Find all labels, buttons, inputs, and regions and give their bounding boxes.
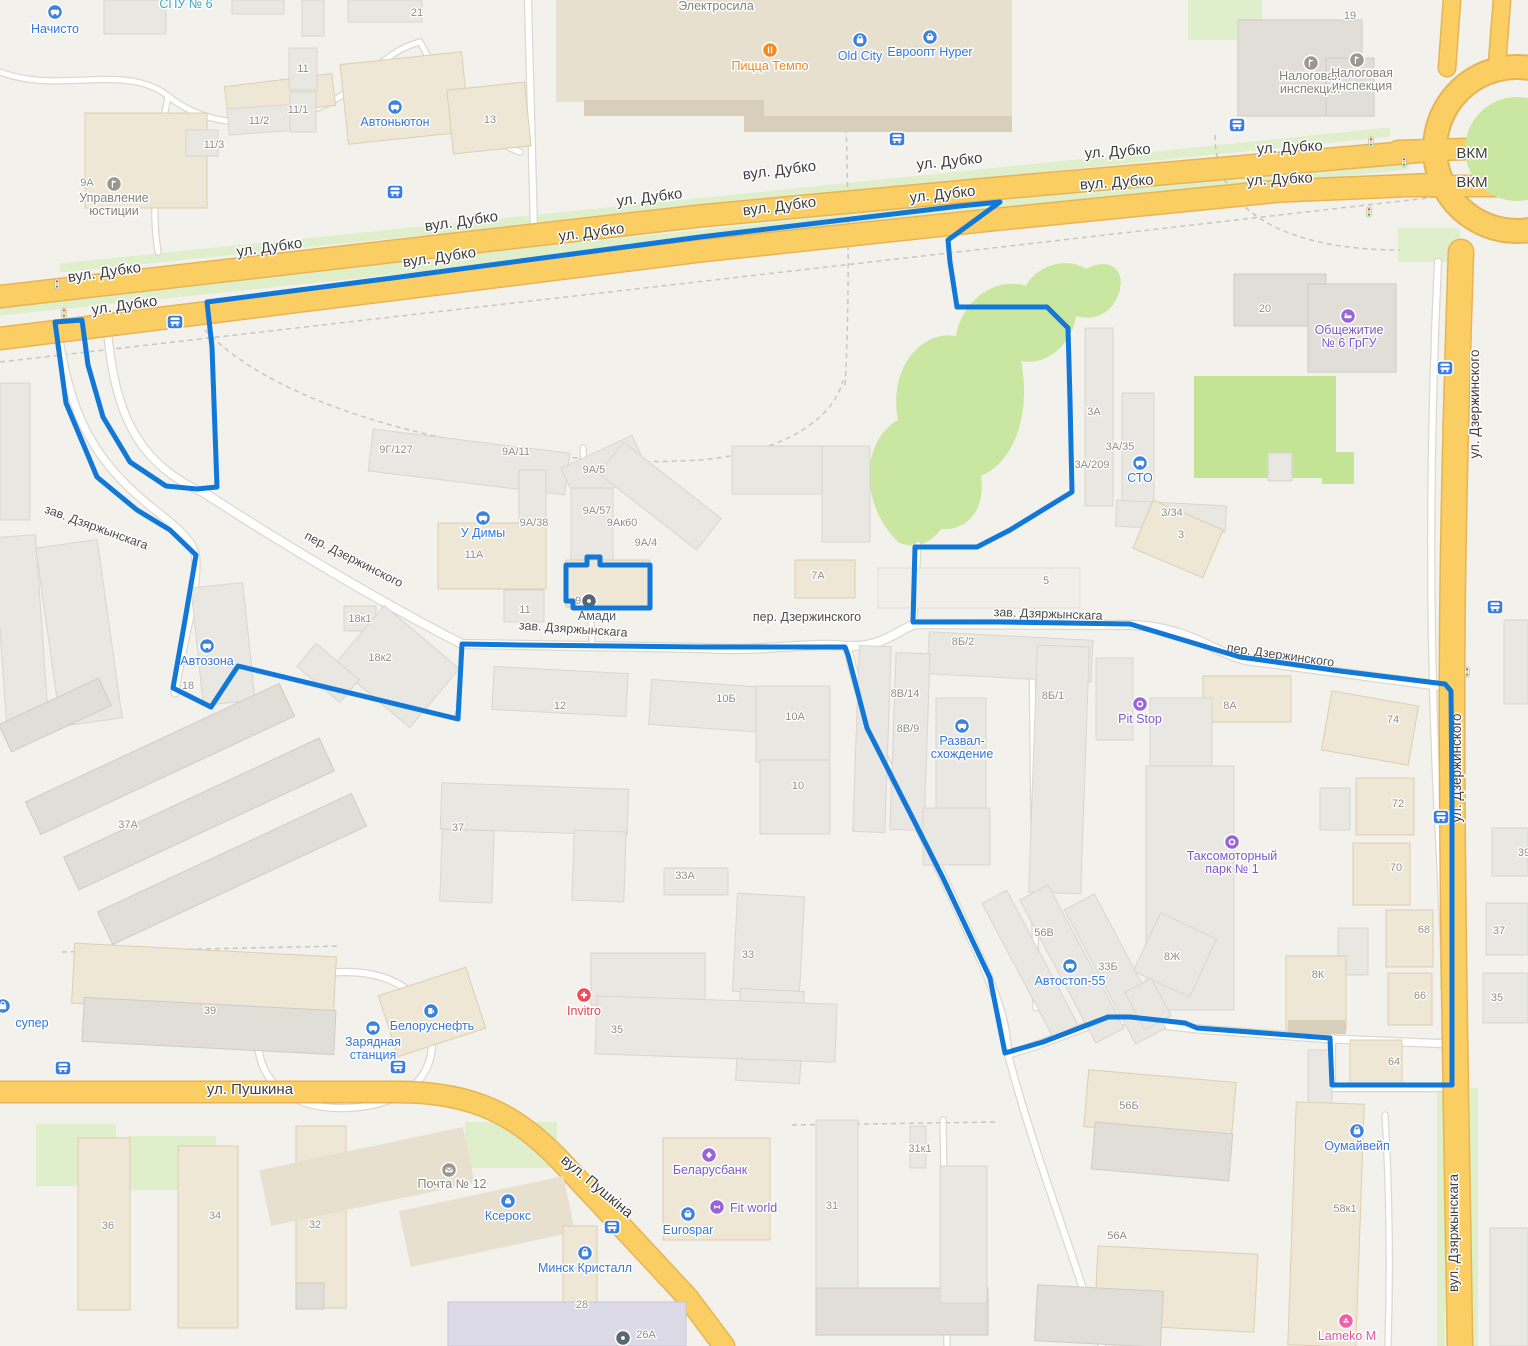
building (756, 686, 830, 762)
building (1490, 1228, 1528, 1346)
bus-stop-icon[interactable] (167, 315, 183, 329)
poi-label[interactable]: Евроопт Hyper (887, 45, 972, 59)
building-number: 56Б (1119, 1100, 1138, 1112)
building-number: 3А/209 (1075, 459, 1110, 471)
poi-label[interactable]: У Димы (461, 526, 505, 540)
building-number: 3А (1087, 406, 1101, 418)
building-number: 8Б/1 (1042, 690, 1065, 702)
building (296, 1283, 324, 1309)
bag-icon[interactable] (853, 33, 868, 48)
basket-icon[interactable] (681, 1207, 696, 1222)
car-icon[interactable] (1133, 456, 1148, 471)
printer-icon[interactable] (501, 1194, 516, 1209)
bus-stop-icon[interactable] (1437, 361, 1453, 375)
bank-icon[interactable] (702, 1148, 717, 1163)
ring-icon[interactable] (1225, 835, 1240, 850)
flower-icon[interactable] (1339, 1314, 1354, 1329)
poi-label[interactable]: супер (15, 1016, 48, 1030)
building (595, 996, 837, 1062)
building-number: 36 (102, 1220, 114, 1232)
traffic-light-icon (1402, 157, 1406, 167)
building-number: 11А (465, 549, 484, 561)
street-label: ул. Пушкина (207, 1081, 294, 1098)
bag-icon[interactable] (1350, 1124, 1365, 1139)
building-number: 10А (785, 711, 805, 723)
basket-icon[interactable] (923, 30, 938, 45)
building-number: 33Б (1098, 961, 1117, 973)
traffic-light-icon (55, 279, 59, 289)
building-number: 37А (118, 819, 138, 831)
building-number: 9А/11 (502, 446, 530, 458)
street-label: вул. Дзяржынскага (1446, 1173, 1461, 1292)
poi-label[interactable]: Амади (578, 609, 616, 623)
building-number: 11/1 (288, 104, 309, 116)
building-number: 35 (611, 1024, 623, 1036)
mail-icon[interactable] (442, 1163, 457, 1178)
poi-label[interactable]: Pit Stop (1118, 712, 1162, 726)
building (890, 652, 930, 830)
building-number: 10Б (716, 693, 735, 705)
green-area (1194, 376, 1336, 478)
building (1122, 393, 1154, 515)
building-number: 26А (636, 1329, 656, 1341)
car-icon[interactable] (388, 100, 403, 115)
bus-stop-icon[interactable] (55, 1061, 71, 1075)
building (822, 446, 870, 542)
poi-label[interactable]: Управлениеюстиции (79, 191, 149, 218)
poi-label[interactable]: Fit world (730, 1201, 777, 1215)
building-number: 35 (1491, 992, 1503, 1004)
poi-label[interactable]: Налоговаяинспекция (1331, 66, 1393, 93)
building-number: 32 (309, 1219, 321, 1231)
building-number: 5 (1043, 575, 1049, 587)
building-number: 8В/14 (891, 688, 920, 700)
traffic-light-icon (1465, 667, 1469, 677)
building-number: 9Г/127 (379, 444, 412, 456)
building (1483, 973, 1528, 1023)
building (1386, 910, 1433, 967)
building (940, 1166, 987, 1303)
building (440, 783, 628, 835)
building-number: 8Б/2 (952, 636, 975, 648)
building (572, 830, 626, 902)
building-number: 8А (1223, 700, 1237, 712)
poi-label[interactable]: Автоньютон (360, 115, 429, 129)
car-icon[interactable] (200, 639, 215, 654)
building-number: 11/3 (204, 139, 225, 151)
building (795, 560, 855, 598)
building (1150, 698, 1212, 770)
food-icon[interactable] (763, 43, 778, 58)
poi-label[interactable]: Начисто (31, 22, 79, 36)
building-number: 9А/38 (520, 517, 549, 529)
building-number: 3А/35 (1106, 441, 1135, 453)
poi-label[interactable]: Общежитие№ 6 ГрГУ (1315, 323, 1384, 350)
bag-icon[interactable] (578, 1246, 593, 1261)
building-number: 9 (575, 595, 581, 607)
poi-label[interactable]: Электросила (678, 0, 754, 13)
building-number: 9А/5 (583, 464, 606, 476)
building-number: 9А/4 (635, 537, 658, 549)
road (1447, 0, 1452, 68)
poi-label[interactable]: Белоруснефть (390, 1019, 474, 1033)
bed-icon[interactable] (1341, 309, 1356, 324)
building-number: 9А/57 (583, 505, 612, 517)
bus-stop-icon[interactable] (387, 185, 403, 199)
building-number: 58к1 (1333, 1203, 1356, 1215)
building-number: 8К (1312, 969, 1325, 981)
car-icon[interactable] (1063, 959, 1078, 974)
street-label: ул. Дубко (1246, 169, 1313, 189)
building-number: 70 (1390, 862, 1402, 874)
traffic-light-icon (62, 308, 66, 318)
poi-label[interactable]: Автозона (180, 654, 234, 668)
flag-icon[interactable] (107, 177, 122, 192)
building-number: 34 (209, 1210, 221, 1222)
building (1029, 645, 1090, 894)
poi-label[interactable]: Беларусбанк (673, 1163, 748, 1177)
building-number: 18 (182, 680, 194, 692)
building (878, 568, 1080, 608)
fuel-icon[interactable] (424, 1004, 439, 1019)
building-number: 7А (811, 570, 825, 582)
building-number: 18к1 (348, 613, 371, 625)
building-number: 64 (1388, 1056, 1400, 1068)
building-number: 20 (1259, 303, 1271, 315)
building-number: 56В (1034, 927, 1054, 939)
cross-icon[interactable] (577, 988, 592, 1003)
building-number: 39 (204, 1005, 216, 1017)
building-number: 9Ак60 (607, 517, 638, 529)
street-label: ВКМ (1456, 145, 1487, 162)
car-icon[interactable] (955, 719, 970, 734)
traffic-light-icon (1369, 137, 1373, 147)
building-number: 3 (1178, 529, 1184, 541)
bus-stop-icon[interactable] (1487, 600, 1503, 614)
building (104, 0, 166, 34)
building (1288, 1020, 1346, 1034)
poi-label[interactable]: Пицца Темпо (732, 59, 809, 73)
building-number: 31к1 (908, 1143, 931, 1155)
building-number: 74 (1387, 714, 1399, 726)
poi-label[interactable]: Автостоп-55 (1035, 974, 1106, 988)
poi-label[interactable]: Оумайвейп (1324, 1139, 1390, 1153)
road (1497, 0, 1502, 64)
building-number: 28 (576, 1299, 588, 1311)
building-number: 8Ж (1164, 951, 1180, 963)
map-viewport[interactable]: 21131111/111/211/39А19203А3А/353А/2093/3… (0, 0, 1528, 1346)
traffic-light-icon (1367, 207, 1371, 217)
ring-icon[interactable] (1133, 697, 1148, 712)
building-number: 66 (1414, 990, 1426, 1002)
poi-label[interactable]: Заряднаястанция (345, 1035, 401, 1062)
building (1268, 453, 1292, 481)
street-label: ул. Дзержинского (1467, 350, 1482, 459)
building (1203, 676, 1291, 722)
street-label: ул. Дубко (1256, 137, 1323, 157)
building-number: 68 (1418, 924, 1430, 936)
map-canvas[interactable]: 21131111/111/211/39А19203А3А/353А/2093/3… (0, 0, 1528, 1346)
building-number: 33 (742, 949, 754, 961)
building-number: 9А (80, 177, 94, 189)
building (1035, 1285, 1164, 1346)
building-number: 8В/9 (897, 723, 920, 735)
building-number: 18к2 (368, 652, 391, 664)
bus-stop-icon[interactable] (1433, 810, 1449, 824)
building (232, 0, 284, 14)
building-number: 21 (411, 7, 423, 19)
poi-label[interactable]: Eurospar (663, 1223, 714, 1237)
car-icon[interactable] (366, 1021, 381, 1036)
car-icon[interactable] (48, 5, 63, 20)
building (0, 383, 30, 520)
poi-label[interactable]: Ксерокс (485, 1209, 531, 1223)
car-icon[interactable] (476, 511, 491, 526)
building (1286, 956, 1346, 1030)
poi-label[interactable]: СПУ № 6 (159, 0, 212, 11)
bus-stop-icon[interactable] (390, 1060, 406, 1074)
building-number: 10 (792, 780, 804, 792)
building (664, 868, 728, 895)
building-number: 13 (484, 114, 496, 126)
building-number: 37 (1493, 925, 1505, 937)
building (1356, 778, 1414, 835)
poi-label[interactable]: СТО (1127, 471, 1153, 485)
building-number: 33А (675, 870, 695, 882)
poi-label[interactable]: Развал-схождение (931, 734, 994, 761)
poi-label[interactable]: Old City (838, 49, 883, 63)
building (1320, 788, 1350, 830)
building-number: 56А (1107, 1230, 1127, 1242)
dark-icon[interactable] (616, 1331, 631, 1346)
street-label: пер. Дзержинского (753, 610, 861, 624)
building-number: 19 (1344, 10, 1356, 22)
street-label: ВКМ (1456, 174, 1487, 191)
building (302, 0, 324, 36)
building (744, 116, 1012, 132)
building-number: 11/2 (249, 115, 270, 127)
building (760, 760, 830, 834)
building (440, 829, 494, 903)
building-number: 31 (826, 1200, 838, 1212)
building-number: 12 (554, 700, 566, 712)
building-number: 3/34 (1161, 507, 1182, 519)
poi-label[interactable]: Минск Кристалл (538, 1261, 632, 1275)
building (1504, 620, 1528, 704)
building (178, 1146, 238, 1328)
building (1353, 843, 1410, 905)
bag-icon[interactable] (0, 999, 11, 1014)
building-number: 37 (452, 822, 464, 834)
building (732, 893, 804, 994)
building-number: 72 (1392, 798, 1404, 810)
poi-label[interactable]: Lameko M (1318, 1329, 1376, 1343)
building-number: 11 (297, 63, 308, 75)
poi-label[interactable]: Почта № 12 (418, 1177, 487, 1191)
bus-stop-icon[interactable] (1229, 118, 1245, 132)
poi-label[interactable]: Invitro (567, 1004, 601, 1018)
bus-stop-icon[interactable] (604, 1220, 620, 1234)
gym-icon[interactable] (710, 1200, 725, 1215)
building (584, 100, 764, 116)
green-area (1322, 452, 1354, 484)
building-number: 39 (1518, 847, 1528, 859)
building-number: 11 (519, 604, 530, 616)
building (1096, 658, 1133, 740)
bus-stop-icon[interactable] (889, 132, 905, 146)
